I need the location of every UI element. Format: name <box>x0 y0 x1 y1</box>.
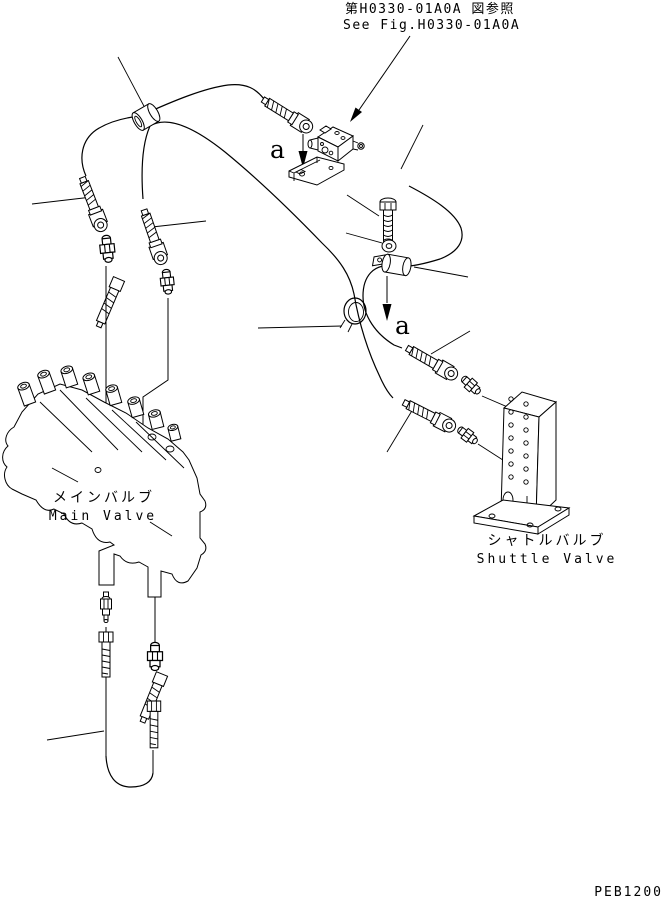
mounting-bolt <box>380 198 396 243</box>
bottom-piping <box>99 592 168 787</box>
nut-and-tube-fitting <box>147 701 160 748</box>
diagram-sheet: 第H0330-01A0A 図参照 See Fig.H0330-01A0A <box>0 0 665 900</box>
leader-line <box>414 267 468 277</box>
hose-block-to-shuttle <box>363 186 462 348</box>
hose-clamp <box>130 102 163 132</box>
pilot-valve-block <box>308 126 364 161</box>
pressure-sensor-fitting <box>101 592 112 623</box>
hose-main-to-shuttle <box>142 122 393 398</box>
connector-fitting <box>159 269 175 295</box>
hose-end-fitting <box>75 175 110 234</box>
pilot-valve-block-group: a <box>259 93 412 276</box>
assembly-line <box>478 444 506 462</box>
main-valve-label-jp: メインバルブ <box>53 489 155 506</box>
leader-line <box>47 731 104 740</box>
hose-end-fitting <box>137 207 170 266</box>
loop-clamp <box>340 298 366 332</box>
connector-fitting <box>459 373 484 397</box>
hose-end-fitting <box>259 93 316 136</box>
leader-line <box>32 197 92 204</box>
leader-line <box>346 233 382 243</box>
shuttle-valve-drawing <box>474 392 569 534</box>
u-bend-hose <box>106 756 153 787</box>
marker-a-upper: a <box>270 135 285 164</box>
piping-diagram-canvas: 第H0330-01A0A 図参照 See Fig.H0330-01A0A <box>0 0 665 900</box>
leader-line <box>431 331 470 354</box>
elbow-fitting <box>93 277 124 330</box>
reference-arrow <box>350 36 410 122</box>
leader-line <box>258 326 342 328</box>
connector-fitting <box>99 235 116 263</box>
shuttle-hose-fittings <box>400 342 519 462</box>
hose-end-fitting <box>403 342 460 384</box>
nut-and-tube-fitting <box>99 632 113 677</box>
leader-line <box>387 409 413 452</box>
leader-line <box>118 57 146 110</box>
connector-fitting <box>148 642 163 670</box>
shuttle-valve-label: シャトルバルブ Shuttle Valve <box>477 532 618 567</box>
shuttle-valve-label-jp: シャトルバルブ <box>488 532 607 549</box>
leader-line <box>347 195 379 216</box>
shuttle-valve-base <box>474 500 569 534</box>
mounting-bracket <box>289 157 344 185</box>
band-clamp <box>372 252 413 276</box>
main-valve-label-en: Main Valve <box>49 509 157 524</box>
leader-line <box>401 125 423 169</box>
reference-note-en: See Fig.H0330-01A0A <box>343 18 520 33</box>
insert-arrow-lower <box>383 276 392 321</box>
shuttle-valve-label-en: Shuttle Valve <box>477 552 618 567</box>
main-valve-drawing <box>3 365 206 597</box>
figure-reference-note: 第H0330-01A0A 図参照 See Fig.H0330-01A0A <box>343 1 520 33</box>
reference-note-jp: 第H0330-01A0A 図参照 <box>345 1 515 17</box>
hose-lines <box>82 85 462 398</box>
connector-fitting <box>455 424 480 447</box>
washer <box>382 240 396 252</box>
leader-line <box>152 221 206 227</box>
marker-a-lower: a <box>395 311 410 340</box>
drawing-number: PEB1200 <box>594 885 663 900</box>
